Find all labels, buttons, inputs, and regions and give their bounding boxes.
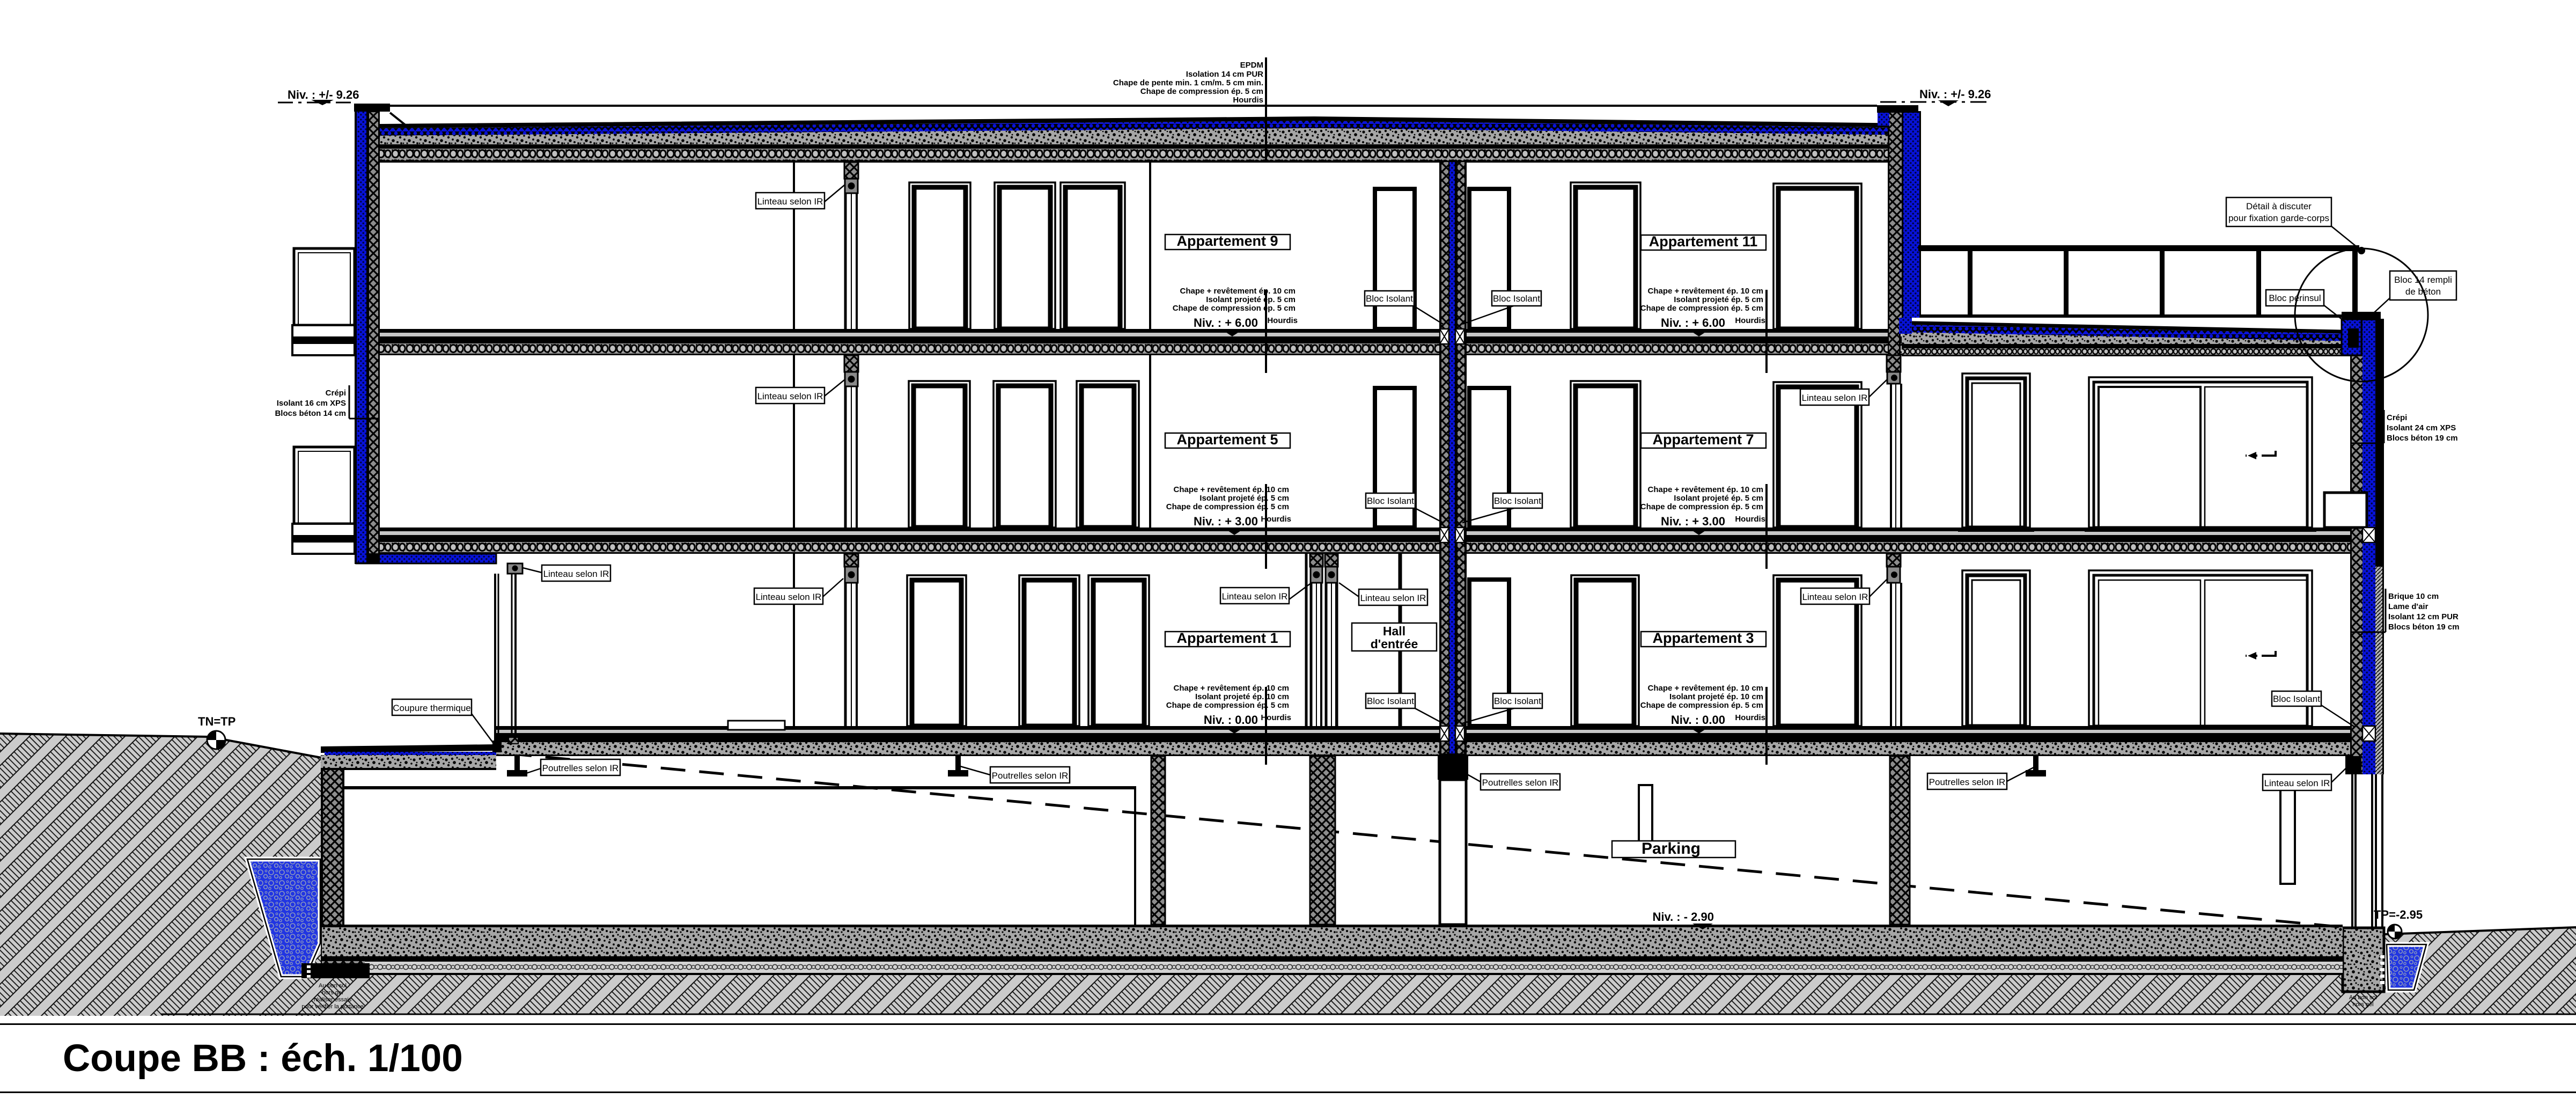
svg-text:Linteau selon IR: Linteau selon IR [1802, 592, 1868, 602]
svg-text:Bloc Isolant: Bloc Isolant [2273, 694, 2320, 704]
svg-text:Appartement 5: Appartement 5 [1176, 431, 1278, 448]
svg-text:Niv. : +/- 9.26: Niv. : +/- 9.26 [1919, 87, 1991, 101]
svg-text:Poutrelles selon IR: Poutrelles selon IR [1482, 778, 1559, 788]
svg-text:Linteau selon IR: Linteau selon IR [757, 391, 823, 401]
svg-text:Bloc 14 rempli: Bloc 14 rempli [2394, 275, 2452, 285]
svg-text:Bloc Isolant: Bloc Isolant [1493, 294, 1540, 304]
svg-text:Bloc Isolant: Bloc Isolant [1367, 496, 1414, 506]
svg-text:Hourdis: Hourdis [1261, 515, 1291, 524]
svg-text:Poutrelles selon IR: Poutrelles selon IR [542, 763, 619, 773]
svg-text:Chape de compression ép. 5 cm: Chape de compression ép. 5 cm [1166, 701, 1289, 710]
svg-text:Hourdis: Hourdis [1233, 96, 1263, 105]
svg-text:Bloc périnsul: Bloc périnsul [2269, 293, 2321, 303]
svg-text:Linteau selon IR: Linteau selon IR [2264, 778, 2330, 788]
svg-text:Bloc Isolant: Bloc Isolant [1367, 696, 1414, 706]
svg-text:Chape de compression ép. 5 cm: Chape de compression ép. 5 cm [1640, 701, 1763, 710]
svg-text:Chape de compression ép. 5 cm: Chape de compression ép. 5 cm [1140, 87, 1263, 96]
svg-text:Chape + revêtement ép. 10 cm: Chape + revêtement ép. 10 cm [1647, 287, 1763, 296]
svg-text:Blocs béton 19 cm: Blocs béton 19 cm [2387, 434, 2458, 443]
svg-text:Niv. : + 6.00: Niv. : + 6.00 [1661, 316, 1725, 329]
svg-text:Poutrelles selon IR: Poutrelles selon IR [1929, 777, 2006, 787]
svg-text:Lame d'air: Lame d'air [2388, 602, 2428, 611]
svg-text:Chape de compression ép. 5 cm: Chape de compression ép. 5 cm [1166, 502, 1289, 511]
svg-text:Hourdis: Hourdis [1735, 713, 1765, 722]
svg-text:Crépi: Crépi [326, 389, 346, 398]
svg-text:Blocs béton 14 cm: Blocs béton 14 cm [275, 409, 346, 418]
svg-text:Au bon sol: Au bon sol [2349, 994, 2377, 1001]
svg-text:Appartement 11: Appartement 11 [1649, 233, 1758, 250]
svg-text:Chape de compression ép. 5 cm: Chape de compression ép. 5 cm [1640, 502, 1763, 511]
svg-text:Linteau selon IR: Linteau selon IR [1802, 393, 1868, 403]
svg-text:Blocs béton 19 cm: Blocs béton 19 cm [2388, 622, 2460, 632]
svg-text:Niv. : 0.00: Niv. : 0.00 [1204, 713, 1258, 727]
svg-text:Isolant projeté ép. 5 cm: Isolant projeté ép. 5 cm [1674, 295, 1763, 304]
svg-text:hors gel: hors gel [2352, 1001, 2373, 1008]
svg-text:Appartement 9: Appartement 9 [1176, 233, 1278, 249]
svg-text:Appartement 7: Appartement 7 [1652, 431, 1754, 448]
svg-text:Bloc Isolant: Bloc Isolant [1494, 696, 1541, 706]
svg-text:réaliser essais: réaliser essais [314, 997, 352, 1003]
svg-text:Chape + revêtement ép. 10 cm: Chape + revêtement ép. 10 cm [1173, 684, 1289, 693]
svg-text:Chape + revêtement ép. 10 cm: Chape + revêtement ép. 10 cm [1180, 287, 1296, 296]
svg-text:Isolant projeté ép. 5 cm: Isolant projeté ép. 5 cm [1199, 494, 1289, 503]
svg-text:pour vérifier la portance: pour vérifier la portance [301, 1003, 364, 1010]
svg-text:Linteau selon IR: Linteau selon IR [756, 592, 822, 602]
svg-text:Chape de compression ép. 5 cm: Chape de compression ép. 5 cm [1640, 304, 1763, 313]
svg-text:Bloc Isolant: Bloc Isolant [1494, 496, 1541, 506]
svg-text:Isolant 16 cm XPS: Isolant 16 cm XPS [277, 399, 346, 408]
svg-text:Poutrelles selon IR: Poutrelles selon IR [992, 771, 1069, 781]
svg-text:Niv. : + 3.00: Niv. : + 3.00 [1661, 515, 1725, 528]
svg-text:d'entrée: d'entrée [1371, 637, 1418, 651]
svg-text:Chape + revêtement ép. 10 cm: Chape + revêtement ép. 10 cm [1173, 485, 1289, 494]
svg-text:Linteau selon IR: Linteau selon IR [1360, 593, 1426, 603]
svg-text:Coupure thermique: Coupure thermique [393, 703, 471, 713]
svg-text:Hall: Hall [1383, 624, 1405, 638]
svg-text:Isolant projeté ép. 5 cm: Isolant projeté ép. 5 cm [1674, 494, 1763, 503]
svg-text:Bloc Isolant: Bloc Isolant [1366, 294, 1413, 304]
svg-text:Coupe BB : éch. 1/100: Coupe BB : éch. 1/100 [63, 1037, 463, 1080]
svg-text:Niv. : + 3.00: Niv. : + 3.00 [1194, 515, 1258, 528]
svg-text:Appartement 3: Appartement 3 [1652, 630, 1754, 646]
svg-text:Chape de compression ép. 5 cm: Chape de compression ép. 5 cm [1173, 304, 1296, 313]
svg-text:EPDM: EPDM [1240, 61, 1263, 70]
svg-text:Isolant projeté ép. 10 cm: Isolant projeté ép. 10 cm [1195, 692, 1289, 701]
svg-text:Parking: Parking [1642, 840, 1701, 858]
svg-text:Détail à discuter: Détail à discuter [2246, 201, 2312, 211]
svg-text:Linteau selon IR: Linteau selon IR [1222, 591, 1288, 602]
svg-text:Hourdis: Hourdis [1267, 316, 1298, 325]
svg-text:Au bon sol: Au bon sol [319, 983, 347, 989]
svg-text:Niv. : +/- 9.26: Niv. : +/- 9.26 [288, 88, 359, 101]
svg-text:TP=-2.95: TP=-2.95 [2374, 908, 2423, 921]
svg-text:Hourdis: Hourdis [1735, 316, 1765, 325]
svg-text:Brique 10 cm: Brique 10 cm [2388, 592, 2439, 601]
svg-text:Isolation 14 cm PUR: Isolation 14 cm PUR [1186, 70, 1263, 79]
svg-text:Niv. : - 2.90: Niv. : - 2.90 [1652, 910, 1714, 924]
svg-text:Niv. : + 6.00: Niv. : + 6.00 [1194, 316, 1258, 329]
svg-text:Chape + revêtement ép. 10 cm: Chape + revêtement ép. 10 cm [1647, 485, 1763, 494]
svg-text:Crépi: Crépi [2387, 413, 2407, 422]
svg-text:Linteau selon IR: Linteau selon IR [543, 569, 609, 579]
svg-text:Niv. : 0.00: Niv. : 0.00 [1671, 713, 1725, 727]
svg-text:Linteau selon IR: Linteau selon IR [757, 196, 823, 207]
svg-text:TN=TP: TN=TP [198, 715, 235, 728]
svg-text:Isolant 24 cm XPS: Isolant 24 cm XPS [2387, 423, 2456, 433]
svg-text:Isolant 12 cm PUR: Isolant 12 cm PUR [2388, 612, 2459, 621]
svg-text:Hourdis: Hourdis [1735, 515, 1765, 524]
svg-text:Chape + revêtement ép. 10 cm: Chape + revêtement ép. 10 cm [1647, 684, 1763, 693]
svg-text:Isolant projeté ép. 5 cm: Isolant projeté ép. 5 cm [1206, 295, 1296, 304]
svg-text:Chape de pente min. 1 cm/m. 5: Chape de pente min. 1 cm/m. 5 cm min. [1113, 78, 1263, 87]
svg-text:Appartement 1: Appartement 1 [1176, 630, 1278, 646]
svg-text:Isolant projeté ép. 10 cm: Isolant projeté ép. 10 cm [1669, 692, 1763, 701]
svg-text:Hourdis: Hourdis [1261, 713, 1291, 722]
svg-text:pour fixation garde-corps: pour fixation garde-corps [2228, 213, 2329, 223]
svg-text:hors gel: hors gel [322, 990, 343, 996]
